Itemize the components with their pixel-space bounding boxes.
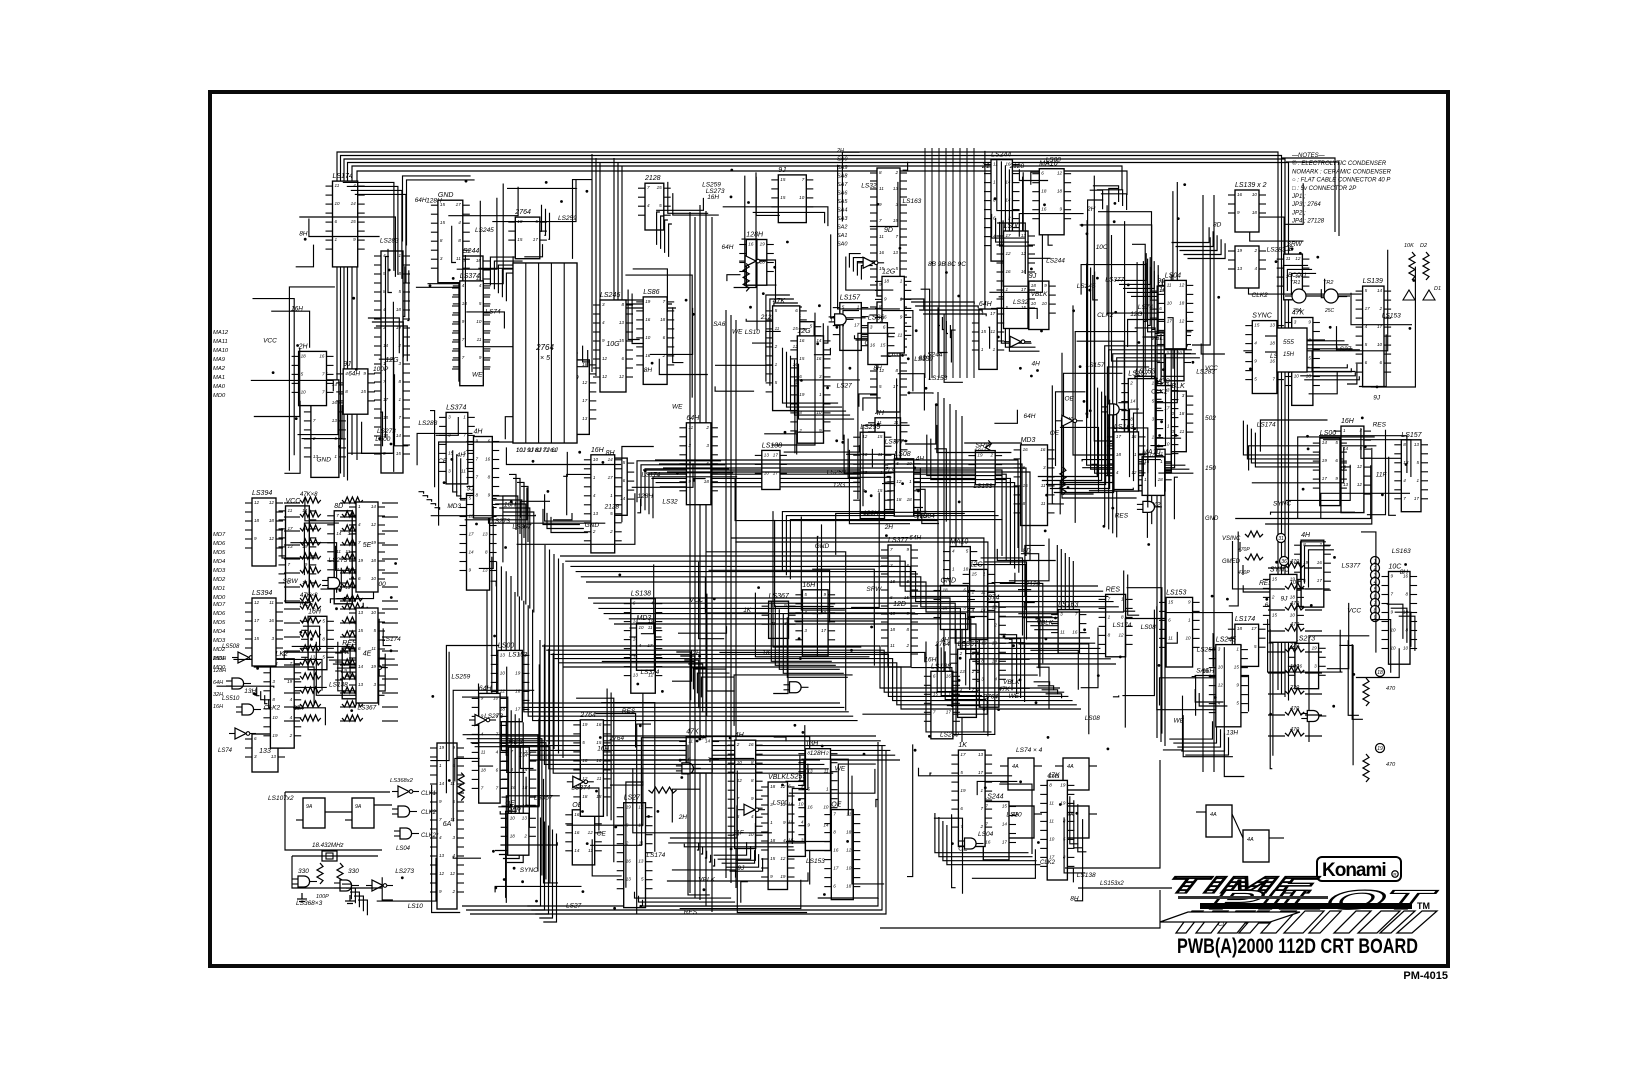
svg-text:9J: 9J — [1373, 395, 1381, 402]
svg-text:MD0: MD0 — [213, 595, 226, 601]
svg-text:18: 18 — [846, 884, 852, 889]
svg-text:5: 5 — [623, 460, 626, 465]
svg-text:12: 12 — [846, 848, 852, 853]
svg-text:16: 16 — [269, 618, 275, 623]
svg-text:4: 4 — [783, 838, 786, 843]
svg-text:9: 9 — [906, 547, 909, 552]
svg-text:LS259: LS259 — [940, 732, 959, 739]
svg-text:LS244: LS244 — [983, 794, 1003, 801]
svg-text:12: 12 — [588, 830, 594, 835]
svg-text:LS27: LS27 — [837, 382, 853, 389]
svg-text:5: 5 — [373, 628, 376, 633]
svg-text:VBLK: VBLK — [698, 877, 715, 884]
svg-text:470: 470 — [1290, 622, 1300, 628]
svg-text:5: 5 — [1308, 356, 1311, 361]
svg-text:9: 9 — [900, 314, 903, 319]
svg-text:16: 16 — [626, 859, 632, 864]
svg-text:6: 6 — [883, 325, 886, 330]
svg-text:9: 9 — [353, 237, 356, 242]
svg-text:12: 12 — [780, 856, 786, 861]
svg-text:MD4: MD4 — [213, 559, 225, 565]
svg-text:GND: GND — [585, 522, 600, 529]
svg-text:9: 9 — [439, 889, 442, 894]
svg-text:1: 1 — [1152, 381, 1155, 386]
svg-text:11: 11 — [1049, 800, 1054, 805]
svg-text:17: 17 — [1021, 287, 1027, 292]
svg-text:10: 10 — [371, 610, 377, 615]
svg-text:11: 11 — [477, 337, 482, 342]
svg-text:4: 4 — [1403, 478, 1406, 483]
svg-text:16: 16 — [645, 317, 651, 322]
svg-text:9: 9 — [884, 296, 887, 301]
svg-text:13: 13 — [1237, 266, 1243, 271]
svg-text:9: 9 — [879, 202, 882, 207]
svg-text:9: 9 — [254, 536, 257, 541]
svg-text:9: 9 — [783, 820, 786, 825]
svg-text:12: 12 — [371, 522, 377, 527]
svg-text:13: 13 — [978, 752, 984, 757]
svg-text:13: 13 — [638, 859, 644, 864]
svg-text:11: 11 — [890, 643, 895, 648]
svg-text:7: 7 — [462, 355, 465, 360]
svg-text:4: 4 — [358, 522, 361, 527]
svg-text:16H: 16H — [597, 745, 609, 752]
svg-text:10: 10 — [1377, 342, 1383, 347]
svg-text:13: 13 — [960, 669, 966, 674]
svg-text:LS153: LS153 — [1166, 589, 1186, 596]
svg-text:12: 12 — [500, 688, 506, 693]
svg-text:SYNC: SYNC — [1252, 313, 1272, 320]
svg-text:14: 14 — [358, 664, 364, 669]
svg-text:11: 11 — [461, 468, 466, 473]
svg-text:18: 18 — [1237, 626, 1243, 631]
svg-text:12: 12 — [269, 500, 275, 505]
svg-text:17: 17 — [773, 452, 779, 457]
svg-text:1: 1 — [770, 820, 773, 825]
svg-text:9: 9 — [363, 371, 366, 376]
svg-text:17: 17 — [608, 475, 614, 480]
svg-text:3: 3 — [254, 754, 257, 759]
svg-text:MA12: MA12 — [213, 330, 229, 336]
svg-text:3: 3 — [272, 679, 275, 684]
svg-text:13: 13 — [626, 877, 632, 882]
svg-text:4: 4 — [647, 203, 650, 208]
svg-text:4A: 4A — [1210, 812, 1217, 818]
svg-text:LS08: LS08 — [1141, 624, 1157, 631]
svg-text:12: 12 — [602, 374, 608, 379]
svg-text:1: 1 — [819, 392, 822, 397]
svg-text:5: 5 — [610, 511, 613, 516]
svg-text:6: 6 — [833, 884, 836, 889]
svg-text:9: 9 — [481, 695, 484, 700]
svg-text:16: 16 — [833, 848, 839, 853]
svg-text:13: 13 — [893, 250, 899, 255]
svg-text:LS174: LS174 — [1235, 616, 1255, 623]
svg-text:10: 10 — [1294, 374, 1300, 379]
svg-text:LS153: LS153 — [806, 858, 825, 865]
svg-text:2H: 2H — [698, 734, 708, 741]
svg-text:10: 10 — [1167, 300, 1173, 305]
svg-text:10: 10 — [1403, 646, 1409, 651]
svg-text:64H: 64H — [722, 244, 734, 251]
svg-text:MA11: MA11 — [213, 339, 228, 345]
svg-text:LS153x2: LS153x2 — [1100, 881, 1124, 887]
svg-text:5: 5 — [1335, 440, 1338, 445]
svg-text:12: 12 — [1118, 632, 1124, 637]
svg-text:17: 17 — [1251, 626, 1257, 631]
svg-text:6: 6 — [788, 783, 791, 788]
svg-text:LS374: LS374 — [641, 669, 660, 676]
svg-text:9: 9 — [784, 603, 787, 608]
svg-text:5: 5 — [479, 301, 482, 306]
svg-text:LS10: LS10 — [1006, 812, 1022, 819]
svg-text:LS283: LS283 — [380, 238, 399, 245]
svg-text:4A: 4A — [1067, 764, 1074, 770]
svg-text:8: 8 — [398, 271, 401, 276]
svg-text:7: 7 — [496, 785, 499, 790]
svg-text:1: 1 — [398, 253, 401, 258]
svg-text:LS163: LS163 — [1392, 548, 1411, 555]
svg-text:16: 16 — [1040, 447, 1046, 452]
svg-text:LS138: LS138 — [762, 442, 782, 449]
svg-text:13: 13 — [1414, 442, 1420, 447]
svg-text:LS27: LS27 — [566, 903, 582, 910]
svg-text:19: 19 — [272, 733, 278, 738]
svg-text:16: 16 — [485, 457, 491, 462]
svg-text:LS163: LS163 — [903, 198, 922, 205]
svg-text:19: 19 — [358, 558, 364, 563]
svg-text:BCOLL: BCOLL — [1288, 273, 1308, 279]
svg-text:—NOTES—: —NOTES— — [1291, 153, 1326, 159]
svg-text:15: 15 — [1002, 804, 1008, 809]
svg-text:6: 6 — [1365, 360, 1368, 365]
svg-text:6: 6 — [799, 374, 802, 379]
svg-text:SRW: SRW — [283, 578, 299, 585]
svg-text:18: 18 — [1158, 477, 1164, 482]
svg-text:LS08: LS08 — [1085, 715, 1101, 722]
svg-text:3: 3 — [1166, 351, 1169, 356]
svg-text:MD0: MD0 — [213, 393, 226, 399]
svg-text:8D: 8D — [334, 503, 343, 510]
svg-text:12G: 12G — [1130, 311, 1142, 318]
svg-text:6: 6 — [906, 563, 909, 568]
svg-text:19: 19 — [626, 805, 632, 810]
svg-text:6: 6 — [358, 576, 361, 581]
svg-text:11: 11 — [648, 625, 653, 630]
svg-text:8: 8 — [906, 627, 909, 632]
svg-text:LS244: LS244 — [991, 152, 1011, 159]
svg-text:9: 9 — [488, 493, 491, 498]
svg-text:133: 133 — [259, 748, 271, 755]
svg-text:2H: 2H — [678, 814, 688, 821]
svg-text:WE: WE — [732, 329, 743, 336]
svg-text:14: 14 — [608, 457, 614, 462]
svg-text:LS10: LS10 — [745, 329, 761, 336]
svg-text:LS32: LS32 — [1013, 299, 1029, 306]
svg-text:9: 9 — [1308, 320, 1311, 325]
svg-text:13: 13 — [332, 418, 338, 423]
svg-text:16: 16 — [1041, 207, 1047, 212]
svg-text:4: 4 — [1116, 470, 1119, 475]
svg-text:11: 11 — [1060, 630, 1065, 635]
svg-text:4H: 4H — [875, 410, 885, 417]
svg-text:12: 12 — [254, 600, 260, 605]
svg-text:2: 2 — [662, 353, 666, 358]
svg-text:7: 7 — [647, 185, 650, 190]
svg-text:25A: 25A — [1292, 308, 1303, 314]
svg-text:502: 502 — [1205, 415, 1216, 422]
svg-text:2: 2 — [990, 453, 994, 458]
svg-text:220: 220 — [1289, 643, 1300, 649]
svg-text:LS86: LS86 — [868, 315, 884, 322]
svg-text:10: 10 — [510, 815, 516, 820]
svg-text:1K: 1K — [958, 742, 967, 749]
svg-text:17: 17 — [456, 202, 462, 207]
svg-text:16: 16 — [870, 343, 876, 348]
svg-text:11F: 11F — [733, 830, 745, 837]
svg-text:LS377: LS377 — [885, 439, 904, 446]
svg-text:7: 7 — [895, 234, 898, 239]
svg-text:6: 6 — [1168, 617, 1171, 622]
svg-text:4H: 4H — [457, 452, 466, 459]
svg-text:17: 17 — [1167, 318, 1173, 323]
svg-text:9A: 9A — [306, 804, 313, 810]
svg-text:SYNC: SYNC — [520, 867, 538, 874]
svg-text:1: 1 — [993, 347, 996, 352]
svg-text:16: 16 — [799, 338, 805, 343]
svg-text:GND: GND — [317, 457, 332, 464]
svg-text:16: 16 — [1006, 269, 1012, 274]
svg-text:15: 15 — [1254, 323, 1260, 328]
svg-text:CLK1: CLK1 — [421, 791, 436, 797]
svg-text:10: 10 — [764, 470, 770, 475]
svg-text:1: 1 — [1236, 647, 1239, 652]
svg-text:18: 18 — [1031, 283, 1037, 288]
svg-text:9: 9 — [1391, 610, 1394, 615]
svg-text:17: 17 — [469, 532, 475, 537]
svg-text:4: 4 — [496, 749, 499, 754]
svg-text:LS174: LS174 — [1257, 422, 1276, 429]
svg-text:LS245: LS245 — [600, 292, 620, 299]
svg-text:LS377: LS377 — [1342, 563, 1361, 570]
svg-text:16H: 16H — [213, 704, 223, 710]
svg-text:1: 1 — [880, 470, 883, 475]
svg-text:13: 13 — [439, 853, 445, 858]
svg-text:15: 15 — [770, 856, 776, 861]
svg-text:5: 5 — [322, 618, 325, 623]
svg-text:5: 5 — [1236, 701, 1239, 706]
svg-text:1: 1 — [1108, 614, 1111, 619]
svg-text:3: 3 — [1294, 320, 1297, 325]
svg-text:12: 12 — [254, 500, 260, 505]
svg-text:6: 6 — [335, 219, 338, 224]
svg-text:10: 10 — [593, 457, 599, 462]
svg-text:5: 5 — [804, 592, 807, 597]
svg-text:6: 6 — [621, 356, 624, 361]
svg-text:14: 14 — [1130, 399, 1136, 404]
svg-text:4: 4 — [1254, 266, 1257, 271]
svg-text:5: 5 — [1254, 377, 1257, 382]
svg-text:LS153: LS153 — [509, 651, 528, 658]
svg-text:5: 5 — [1365, 288, 1368, 293]
svg-text:LS00: LS00 — [1046, 156, 1062, 163]
svg-text:16H: 16H — [291, 305, 303, 312]
svg-text:100P: 100P — [373, 366, 389, 373]
svg-text:LS153: LS153 — [973, 483, 992, 490]
svg-text:11: 11 — [288, 508, 293, 513]
svg-text:SA6: SA6 — [508, 805, 521, 812]
svg-text:11: 11 — [1041, 483, 1046, 488]
svg-text:14: 14 — [620, 496, 626, 501]
svg-text:31: 31 — [1278, 536, 1284, 542]
svg-text:10: 10 — [1391, 628, 1397, 633]
svg-text:4: 4 — [290, 697, 293, 702]
svg-text:4: 4 — [353, 183, 356, 188]
svg-text:10: 10 — [1031, 301, 1037, 306]
svg-text:SA6: SA6 — [713, 321, 726, 328]
svg-text:11: 11 — [775, 326, 780, 331]
svg-text:WE: WE — [835, 765, 846, 772]
svg-text:17: 17 — [1414, 496, 1420, 501]
svg-text:13: 13 — [482, 532, 488, 537]
svg-text:5E: 5E — [363, 542, 372, 549]
svg-text:6: 6 — [960, 806, 963, 811]
svg-text:2H: 2H — [1086, 206, 1096, 213]
svg-text:LS174: LS174 — [646, 852, 665, 859]
svg-text:LS163: LS163 — [1058, 602, 1078, 609]
svg-text:11: 11 — [1167, 282, 1172, 287]
svg-text:9: 9 — [476, 439, 479, 444]
svg-text:256H: 256H — [212, 656, 226, 662]
svg-text:4: 4 — [801, 819, 804, 824]
svg-text:MD6: MD6 — [213, 611, 226, 617]
svg-text:5: 5 — [896, 461, 899, 466]
svg-text:470P: 470P — [1238, 570, 1250, 576]
svg-text:4H: 4H — [735, 732, 745, 739]
svg-text:4: 4 — [290, 715, 293, 720]
svg-text:1: 1 — [358, 504, 361, 509]
svg-text:VCC: VCC — [1347, 608, 1361, 615]
svg-text:9: 9 — [439, 799, 442, 804]
svg-text:TR2: TR2 — [1323, 280, 1333, 286]
svg-text:8: 8 — [485, 550, 488, 555]
svg-text:4: 4 — [481, 731, 484, 736]
svg-text:11: 11 — [1180, 429, 1185, 434]
svg-text:10: 10 — [1290, 612, 1296, 617]
svg-text:7: 7 — [1108, 596, 1111, 601]
svg-text:3: 3 — [448, 468, 451, 473]
svg-text:17: 17 — [582, 398, 588, 403]
svg-text:16: 16 — [748, 242, 754, 247]
svg-text:LS245: LS245 — [475, 227, 494, 234]
svg-text:16: 16 — [574, 830, 580, 835]
svg-text:8: 8 — [458, 238, 461, 243]
svg-text:LS153: LS153 — [928, 375, 947, 382]
svg-text:17: 17 — [1365, 306, 1371, 311]
svg-text:CLK2: CLK2 — [1151, 388, 1168, 395]
svg-text:19: 19 — [371, 540, 377, 545]
svg-text:10: 10 — [1391, 646, 1397, 651]
svg-text:16: 16 — [748, 742, 754, 747]
svg-text:LS367: LS367 — [534, 795, 553, 802]
svg-text:13: 13 — [593, 511, 599, 516]
svg-text:9: 9 — [462, 319, 465, 324]
svg-text:16: 16 — [1072, 630, 1078, 635]
svg-text:2128: 2128 — [604, 503, 620, 510]
svg-text:18: 18 — [704, 479, 710, 484]
svg-text:7: 7 — [890, 547, 893, 552]
svg-text:4: 4 — [458, 220, 461, 225]
svg-text:19: 19 — [1237, 248, 1243, 253]
svg-text:64H: 64H — [909, 534, 921, 541]
svg-text:17: 17 — [960, 752, 966, 757]
svg-text:RES: RES — [622, 708, 636, 715]
svg-text:Konami: Konami — [1322, 860, 1386, 881]
svg-text:18: 18 — [462, 301, 468, 306]
svg-text:18: 18 — [481, 767, 487, 772]
svg-text:16: 16 — [816, 356, 822, 361]
svg-text:15: 15 — [780, 177, 786, 182]
svg-text:18: 18 — [1377, 670, 1383, 676]
svg-text:18: 18 — [1270, 341, 1276, 346]
svg-text:11: 11 — [993, 162, 998, 167]
svg-text:JP4 ; 27128: JP4 ; 27128 — [1291, 219, 1325, 225]
svg-text:8H: 8H — [299, 230, 308, 237]
svg-text:10: 10 — [476, 319, 482, 324]
svg-text:9: 9 — [1236, 683, 1239, 688]
svg-text:19: 19 — [1377, 746, 1383, 752]
svg-text:10: 10 — [371, 576, 377, 581]
svg-text:15: 15 — [657, 185, 663, 190]
svg-text:18: 18 — [254, 518, 260, 523]
svg-text:8D: 8D — [1213, 222, 1222, 229]
svg-text:12: 12 — [1218, 683, 1224, 688]
svg-text:16: 16 — [946, 673, 952, 678]
svg-text:7: 7 — [336, 513, 339, 518]
svg-text:15: 15 — [1168, 599, 1174, 604]
svg-text:11: 11 — [1286, 256, 1291, 261]
svg-text:17: 17 — [833, 866, 839, 871]
svg-text:LS374: LS374 — [460, 273, 480, 280]
svg-text:11: 11 — [481, 749, 486, 754]
svg-text:GND: GND — [1205, 516, 1219, 522]
svg-text:11: 11 — [1168, 635, 1173, 640]
svg-text:15: 15 — [972, 571, 978, 576]
svg-text:3: 3 — [1152, 417, 1155, 422]
svg-text:LS74 × 4: LS74 × 4 — [1016, 747, 1043, 754]
svg-text:18: 18 — [770, 838, 776, 843]
svg-text:10: 10 — [799, 195, 805, 200]
svg-text:5: 5 — [1254, 644, 1257, 649]
svg-text:150: 150 — [1205, 465, 1216, 472]
svg-text:18: 18 — [1252, 210, 1258, 215]
svg-text:CE: CE — [597, 830, 607, 837]
svg-text:LS157: LS157 — [1128, 371, 1149, 378]
svg-text:MD1: MD1 — [213, 586, 225, 592]
svg-text:18.432MHz: 18.432MHz — [312, 842, 345, 849]
svg-text:3: 3 — [1182, 393, 1185, 398]
svg-text:WE: WE — [672, 403, 683, 410]
svg-text:8: 8 — [751, 778, 754, 783]
svg-text:18: 18 — [371, 558, 377, 563]
svg-text:TR1: TR1 — [1290, 280, 1300, 286]
svg-text:16: 16 — [1317, 560, 1323, 565]
svg-text:LS32: LS32 — [861, 183, 877, 190]
svg-text:MD7: MD7 — [213, 532, 226, 538]
svg-text:10K: 10K — [1404, 243, 1414, 249]
svg-text:10: 10 — [907, 461, 913, 466]
svg-text:CLK2: CLK2 — [1040, 860, 1056, 866]
